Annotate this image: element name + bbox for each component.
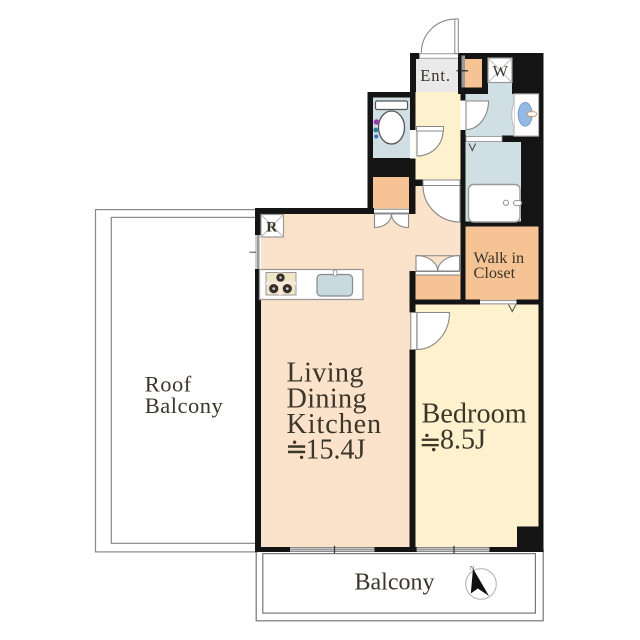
svg-text:Balcony: Balcony xyxy=(355,570,435,596)
svg-text:Balcony: Balcony xyxy=(145,393,224,418)
svg-text:N: N xyxy=(470,566,475,572)
svg-text:8.5J: 8.5J xyxy=(440,425,486,456)
svg-text:R: R xyxy=(266,220,277,236)
svg-text:W: W xyxy=(493,64,509,81)
svg-text:Ent.: Ent. xyxy=(420,66,451,85)
svg-text:Closet: Closet xyxy=(474,263,516,282)
svg-text:15.4J: 15.4J xyxy=(306,435,366,466)
